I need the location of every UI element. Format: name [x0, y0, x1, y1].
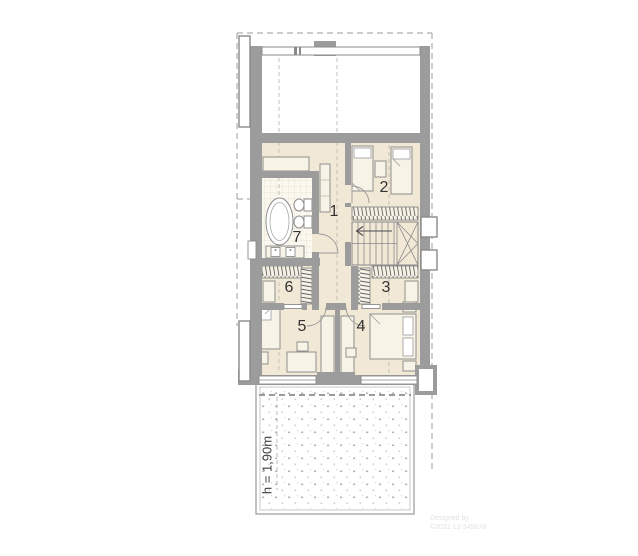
bidet — [294, 216, 312, 228]
pillar-bottom-right — [417, 367, 435, 393]
wardrobe-hatch-room3-side — [358, 268, 370, 304]
wardrobe-hatch-room2 — [352, 207, 418, 220]
watermark-line-1: Designed by — [430, 514, 510, 523]
chimney-bottom — [317, 372, 355, 385]
void-open-to-below — [262, 56, 420, 133]
mullion-tick-1 — [294, 47, 297, 55]
designer-watermark: Designed by ©2021 12-345678 — [430, 514, 510, 532]
desk-room2 — [375, 161, 386, 177]
wall-bedrooms-center — [335, 310, 340, 375]
staircase — [352, 222, 418, 265]
wardrobe-room5-center — [321, 316, 334, 373]
shelf-room4 — [346, 348, 356, 357]
floor-plan-drawing — [0, 0, 638, 556]
door-leaf-room3 — [362, 305, 380, 309]
wall-bathroom-top — [262, 171, 318, 178]
bench-room6 — [263, 281, 275, 302]
wall-room2-left-upper — [345, 143, 351, 185]
terrace-stipple — [261, 388, 409, 509]
floor-plan-page: 1 2 3 4 5 6 7 h = 1,90m Designed by ©202… — [0, 0, 638, 556]
room-label-2: 2 — [380, 179, 389, 197]
bathtub — [266, 198, 293, 245]
wall-exterior-left — [250, 46, 262, 385]
toilet — [294, 199, 312, 211]
wall-exterior-right — [420, 46, 430, 385]
wardrobe-room4-center — [341, 316, 354, 373]
wall-bathroom-right-upper — [312, 171, 319, 234]
hall-counter — [263, 157, 309, 171]
window-stairs-upper — [421, 217, 437, 237]
bay-window-room5 — [239, 321, 250, 381]
wall-room6-bottom-a — [262, 303, 284, 310]
desk-room5 — [287, 352, 316, 372]
mullion-tick-2 — [299, 47, 301, 55]
wall-bathroom-bottom — [262, 258, 320, 266]
wall-room6-bottom-b — [302, 303, 307, 310]
terrace — [256, 383, 414, 514]
window-stairs-lower — [421, 250, 437, 270]
bed-single-room2-right — [391, 147, 412, 194]
height-annotation: h = 1,90m — [260, 436, 275, 494]
window-slot-bathroom-left — [248, 241, 256, 259]
wall-room2-left-lower — [345, 203, 351, 207]
glazing-top — [262, 47, 420, 55]
room-label-3: 3 — [382, 279, 391, 297]
wardrobe-hatch-room3-top — [372, 266, 418, 278]
hall-wardrobe — [320, 164, 330, 212]
vanity-with-sinks — [266, 246, 304, 258]
wall-mid-void — [262, 133, 420, 143]
nightstand-room4-bottom — [403, 361, 416, 371]
wall-corridor-left — [312, 266, 319, 310]
wall-stairs-left — [345, 242, 351, 266]
bay-top-left — [239, 36, 250, 127]
wall-corridor-right — [351, 266, 358, 310]
wall-room3-bottom-a — [382, 303, 420, 310]
chair-room5 — [297, 342, 308, 351]
watermark-line-2: ©2021 12-345678 — [430, 523, 510, 532]
room-label-4: 4 — [357, 318, 366, 336]
room-label-1: 1 — [330, 203, 339, 221]
bed-single-room2-left — [352, 146, 373, 191]
bed-double-room4 — [370, 314, 416, 359]
room-label-6: 6 — [285, 279, 294, 297]
wardrobe-hatch-room6-top — [262, 266, 302, 278]
door-leaf-room6 — [284, 305, 302, 309]
wall-center-stub — [326, 303, 346, 310]
room-label-7: 7 — [293, 229, 302, 247]
room-label-5: 5 — [298, 318, 307, 336]
wardrobe-hatch-room6-side — [301, 268, 312, 304]
bench-room3 — [405, 281, 418, 302]
